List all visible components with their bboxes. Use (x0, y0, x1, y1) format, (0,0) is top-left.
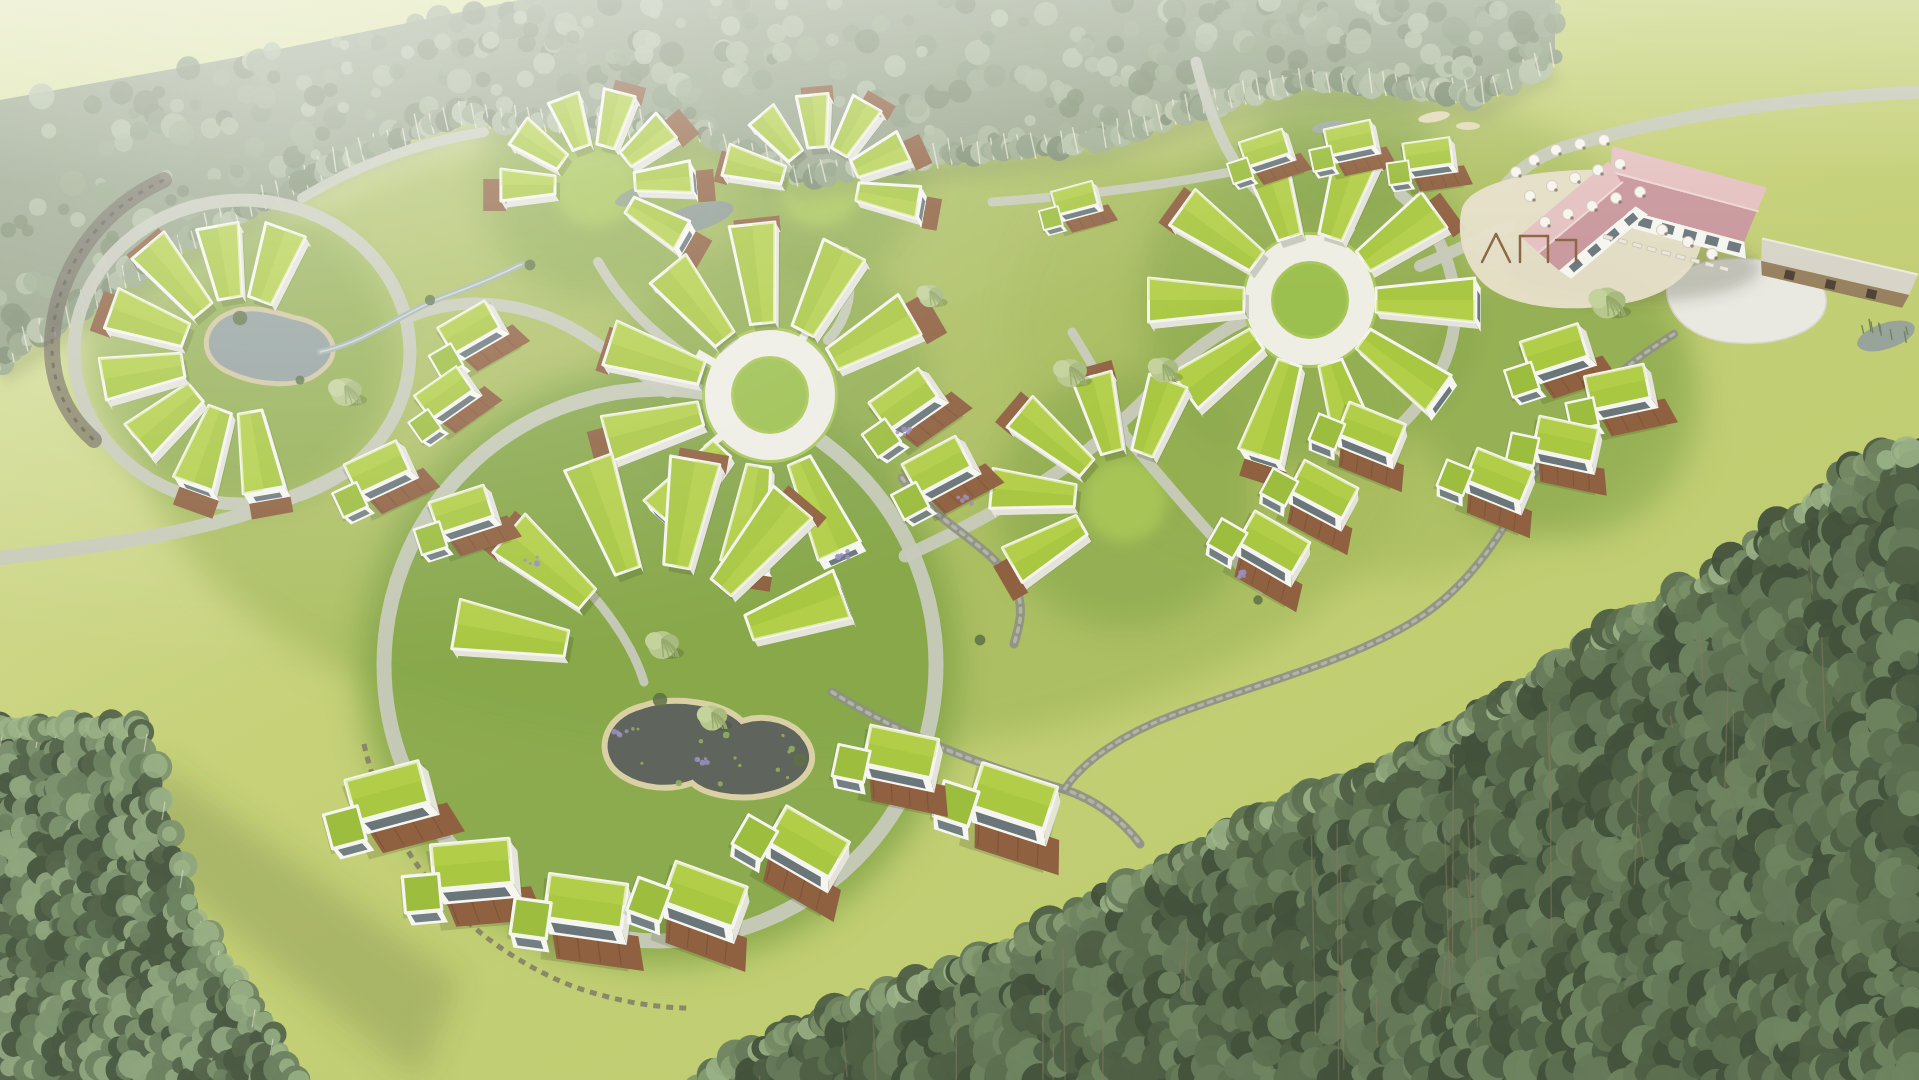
atmospheric-haze (0, 0, 1919, 1080)
aerial-rendering-stage (0, 0, 1919, 1080)
aerial-rendering (0, 0, 1919, 1080)
